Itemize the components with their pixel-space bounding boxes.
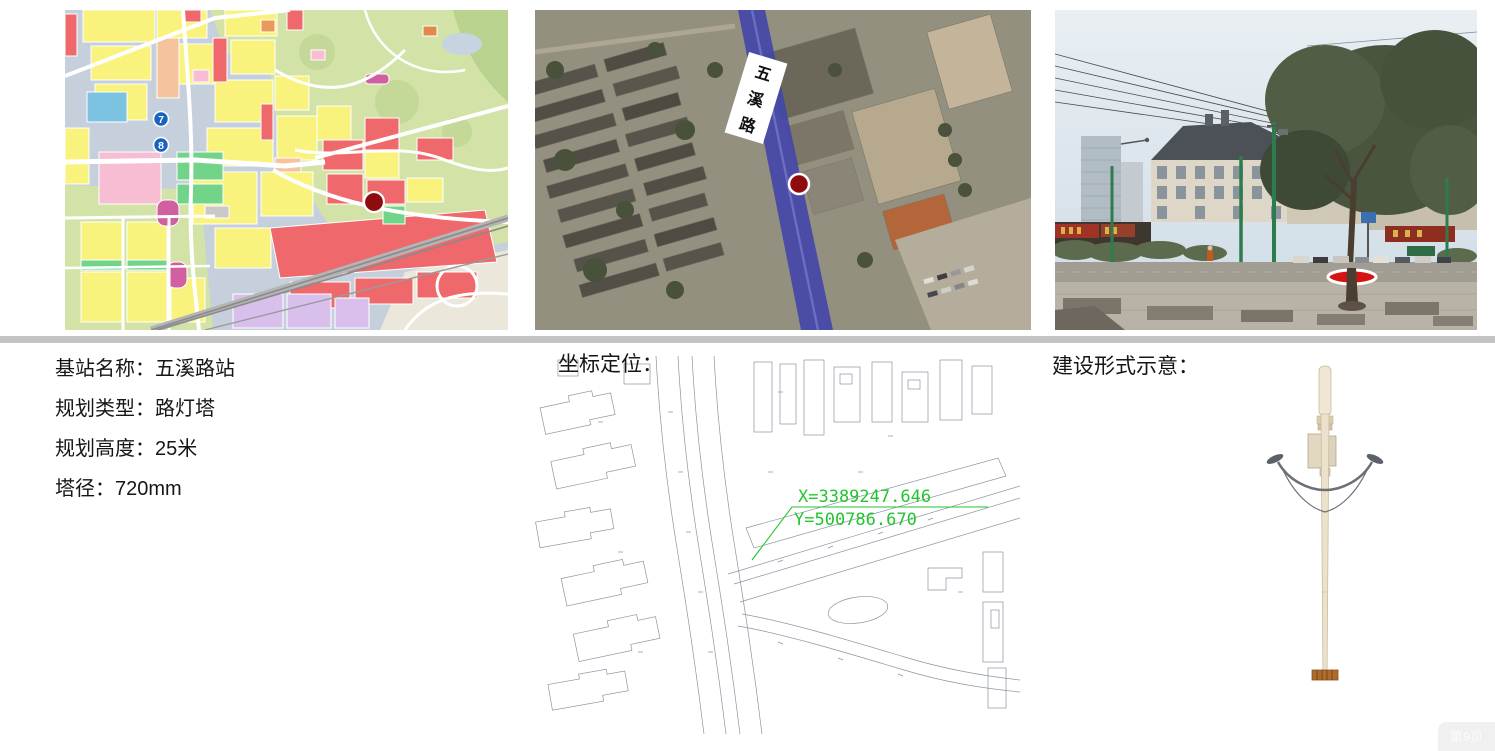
lamp-head-left xyxy=(1265,452,1284,466)
site-marker-icon xyxy=(364,192,384,212)
street-light-tower-image xyxy=(1258,362,1392,687)
zoning-map-image: 7 8 xyxy=(65,10,508,330)
site-marker-icon xyxy=(789,174,809,194)
station-info-panel: 基站名称：五溪路站 规划类型：路灯塔 规划高度：25米 塔径：720mm xyxy=(55,349,235,509)
street-photo-image xyxy=(1055,10,1477,330)
plan-type-line: 规划类型：路灯塔 xyxy=(55,389,235,429)
cad-coordinate-map: X=3389247.646 Y=500786.670 xyxy=(528,352,1020,734)
pole-shaft xyxy=(1321,414,1329,680)
coordinate-x-text: X=3389247.646 xyxy=(798,487,931,507)
slide-page: 7 8 xyxy=(0,0,1495,751)
svg-text:8: 8 xyxy=(158,140,164,152)
coordinate-section-label: 坐标定位： xyxy=(558,348,663,378)
tower-diameter-line: 塔径：720mm xyxy=(55,469,235,509)
page-number-badge: 第9页 xyxy=(1438,722,1495,751)
numbered-marker-7-icon: 7 xyxy=(154,112,169,127)
antenna-shroud xyxy=(1319,366,1331,416)
plan-height-line: 规划高度：25米 xyxy=(55,429,235,469)
construction-section-label: 建设形式示意： xyxy=(1052,350,1199,380)
lamp-head-right xyxy=(1365,452,1384,466)
coordinate-y-text: Y=500786.670 xyxy=(794,510,917,530)
section-divider xyxy=(0,336,1495,343)
satellite-map-image: 五 溪 路 xyxy=(535,10,1031,330)
station-name-line: 基站名称：五溪路站 xyxy=(55,349,235,389)
svg-text:7: 7 xyxy=(158,114,164,126)
numbered-marker-8-icon: 8 xyxy=(154,138,169,153)
pole-base xyxy=(1312,670,1338,680)
